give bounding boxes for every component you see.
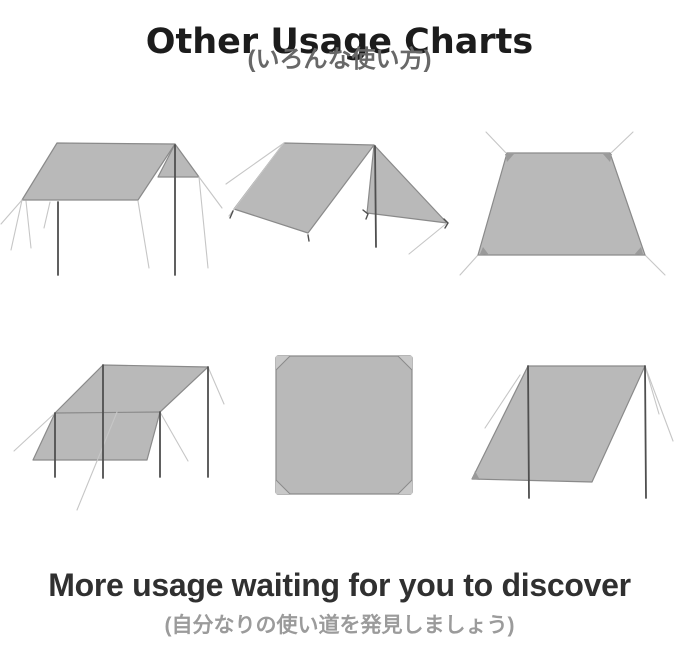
- tarp-right-panel: [367, 145, 447, 223]
- diagram-slanted-windbreak: [455, 358, 679, 503]
- tarp-usage-infographic: Other Usage Charts (いろんな使い方): [0, 0, 679, 648]
- diagram-a-frame-tarp: [222, 133, 455, 260]
- tarp-square: [276, 356, 412, 494]
- tarp-ground-sheet: [478, 153, 645, 255]
- diagram-square-tarp-top-view: [260, 348, 425, 503]
- footer-subtitle-japanese: (自分なりの使い道を発見しましょう): [0, 611, 679, 641]
- diagram-ground-sheet: [450, 125, 679, 280]
- tarp-canopy: [22, 143, 175, 200]
- tarp-wall: [472, 366, 645, 482]
- diagram-lean-to-awning: [5, 360, 235, 512]
- diagram-flat-roof-tarp-with-side-flap: [0, 128, 232, 280]
- page-subtitle-japanese: (いろんな使い方): [0, 44, 679, 76]
- footer-heading: More usage waiting for you to discover: [0, 565, 679, 605]
- center-pole: [375, 146, 376, 247]
- tarp-left-panel: [234, 143, 374, 233]
